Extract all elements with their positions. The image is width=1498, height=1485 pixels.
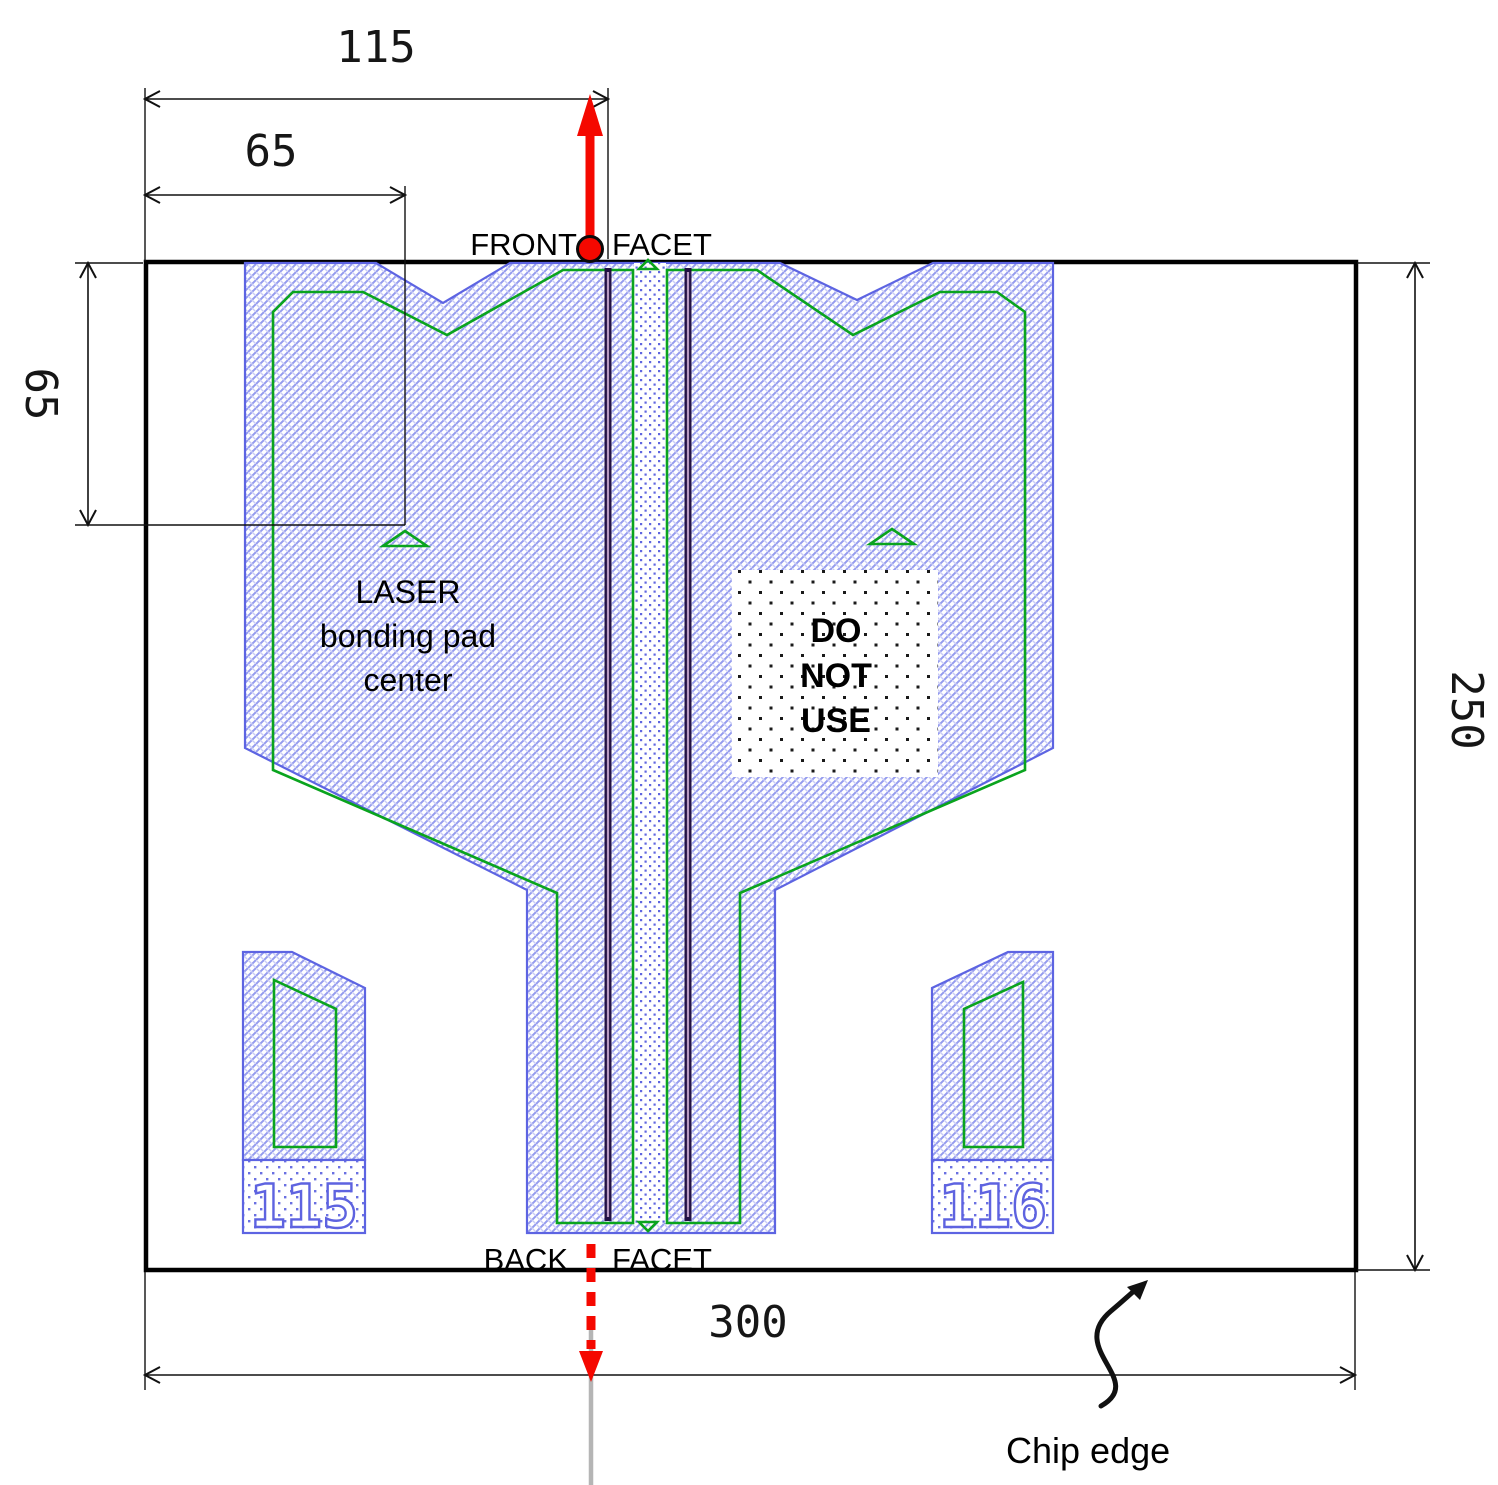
test-pad-116: 116	[932, 952, 1053, 1242]
arrow-up-icon	[577, 94, 603, 136]
test-pad-116-number: 116	[939, 1172, 1047, 1242]
squiggle-arrow-icon	[1097, 1291, 1134, 1406]
dimension-250-value: 250	[1441, 670, 1492, 749]
dimension-65-vertical: 65	[15, 263, 88, 525]
dimension-300-value: 300	[708, 1297, 787, 1348]
dimension-65-horizontal-value: 65	[245, 126, 298, 177]
back-facet-label-left: BACK	[484, 1242, 569, 1277]
test-pad-115-metal	[243, 952, 365, 1160]
laser-pad-label-line3: center	[364, 662, 453, 698]
layout-canvas: DO NOT USE 115 116 115 65	[0, 0, 1498, 1485]
test-pad-115-number: 115	[250, 1172, 358, 1242]
dimension-65-horizontal: 65	[145, 126, 405, 195]
front-facet-emission-dot	[578, 237, 603, 262]
dimension-115-value: 115	[336, 22, 415, 73]
arrow-down-icon	[579, 1351, 603, 1382]
dimension-65-vertical-value: 65	[15, 368, 66, 421]
back-facet-label-right: FACET	[612, 1242, 712, 1277]
test-pad-116-metal	[932, 952, 1053, 1160]
center-isolation-strip	[634, 263, 666, 1223]
dimension-300: 300	[145, 1297, 1355, 1375]
chip-layout-drawing: DO NOT USE 115 116 115 65	[0, 0, 1498, 1485]
dimension-250: 250	[1415, 263, 1492, 1270]
chip-edge-label: Chip edge	[1006, 1430, 1170, 1471]
front-facet-label-left: FRONT	[470, 227, 577, 262]
front-facet-label-right: FACET	[612, 227, 712, 262]
laser-pad-label-line1: LASER	[356, 574, 461, 610]
do-not-use-label-line2: NOT	[800, 657, 872, 695]
do-not-use-label-line1: DO	[811, 612, 862, 650]
laser-pad-label-line2: bonding pad	[320, 618, 496, 654]
dimension-115: 115	[145, 22, 608, 99]
test-pad-115: 115	[243, 952, 365, 1242]
do-not-use-label-line3: USE	[801, 702, 871, 740]
front-facet-beam-arrow	[577, 94, 603, 262]
